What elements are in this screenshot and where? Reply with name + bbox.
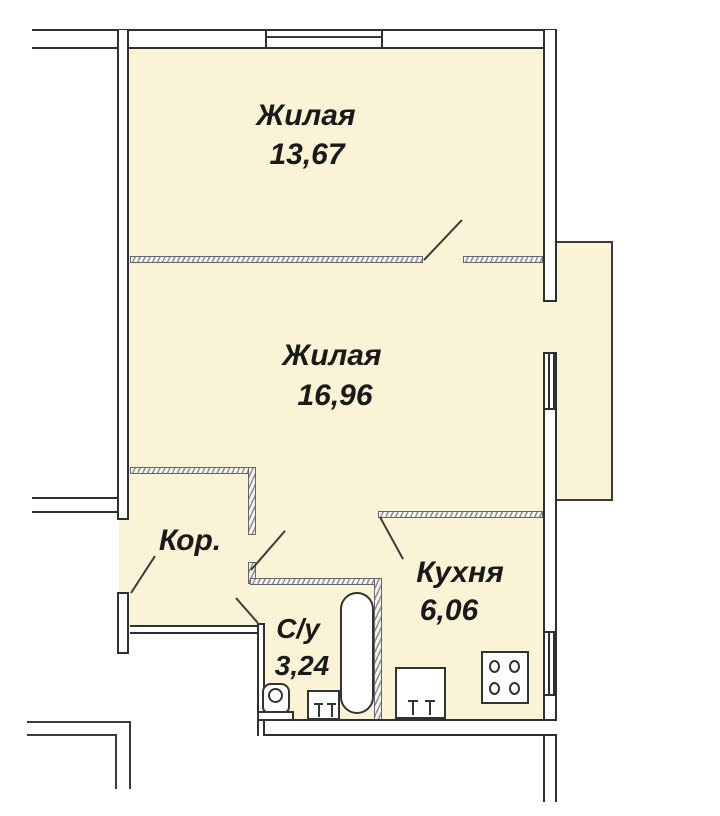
- kitchen-partition: [378, 511, 543, 518]
- washbasin-tap-stem-1: [318, 705, 320, 717]
- stove-burner-4: [509, 682, 520, 695]
- toilet-lid-circle: [268, 688, 283, 703]
- building-wall-line-h2: [27, 734, 117, 736]
- left-wall-upper: [117, 30, 129, 520]
- corridor-top-partition: [130, 467, 250, 474]
- right-wall-middle: [543, 410, 557, 631]
- stove-burner-1: [489, 660, 500, 673]
- room-area-living-2: 16,96: [297, 379, 372, 413]
- room-label-bathroom: С/у: [276, 613, 320, 645]
- corridor-right-partition: [248, 467, 256, 535]
- balcony-region: [557, 241, 613, 501]
- corridor-bottom-wall: [130, 625, 265, 634]
- stove-burner-2: [509, 660, 520, 673]
- stove-burner-3: [489, 682, 500, 695]
- bathroom-top-wall: [250, 578, 382, 585]
- bathtub: [340, 592, 374, 714]
- balcony-doorway-gap: [543, 302, 557, 352]
- building-wall-line-v2: [115, 734, 117, 789]
- room-label-kitchen: Кухня: [416, 556, 504, 590]
- partition-living-rooms-left: [130, 256, 423, 263]
- partition-living-rooms-right: [463, 256, 543, 263]
- room-area-kitchen: 6,06: [420, 594, 478, 628]
- room-label-living-2: Жилая: [282, 339, 381, 373]
- balcony-window-pane: [548, 354, 555, 408]
- kitchen-sink-tap-stem-2: [429, 702, 431, 715]
- neighbor-wall-left: [32, 497, 117, 513]
- room-area-living-1: 13,67: [269, 138, 344, 172]
- washbasin: [307, 690, 340, 720]
- right-wall-upper: [543, 30, 557, 302]
- top-window-pane-line: [267, 36, 381, 38]
- bottom-wall: [257, 719, 557, 736]
- top-window: [265, 29, 383, 49]
- washbasin-tap-stem-2: [331, 705, 333, 717]
- kitchen-window-pane: [548, 633, 555, 694]
- floor-plan: Жилая 13,67 Жилая 16,96 Кор. С/у 3,24 Ку…: [0, 0, 720, 816]
- kitchen-window: [543, 631, 557, 696]
- room-label-corridor: Кор.: [159, 524, 221, 558]
- kitchen-sink-tap-stem-1: [412, 702, 414, 715]
- building-wall-line-v1: [129, 721, 131, 789]
- room-label-living-1: Жилая: [256, 99, 355, 133]
- right-wall-extension: [543, 736, 557, 802]
- room-area-bathroom: 3,24: [275, 650, 330, 682]
- stove: [481, 651, 529, 704]
- left-wall-lower: [117, 592, 129, 654]
- building-wall-line-h1: [27, 721, 131, 723]
- entrance-doorway-gap: [119, 520, 130, 593]
- toilet-base: [257, 711, 294, 721]
- kitchen-sink: [395, 667, 446, 719]
- balcony-window: [543, 352, 557, 410]
- bathroom-right-wall: [374, 578, 382, 720]
